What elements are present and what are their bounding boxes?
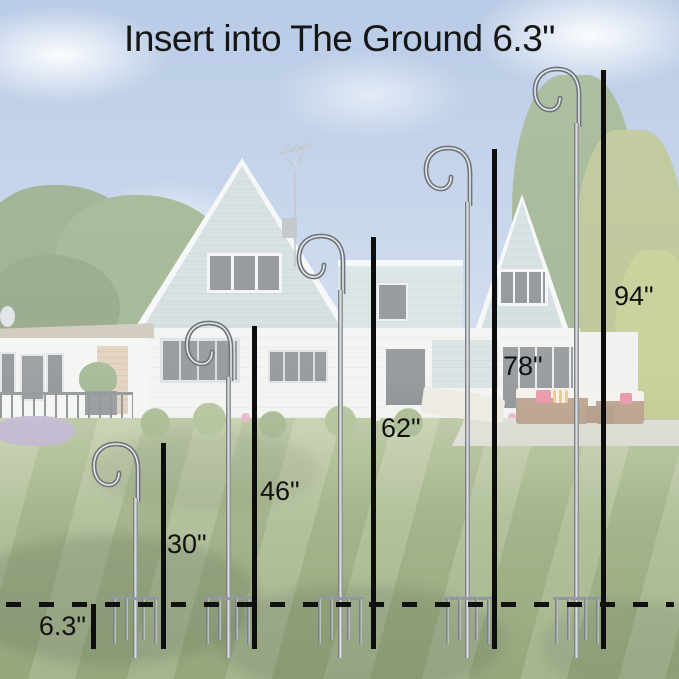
hook-pole-94 — [574, 123, 579, 658]
measure-line-46 — [252, 326, 257, 649]
fork-crossbar — [444, 597, 492, 600]
height-label-30: 30" — [167, 529, 207, 560]
shepherd-hook-crook-94 — [525, 65, 589, 127]
fork-crossbar — [553, 597, 601, 600]
shepherd-hook-crook-78 — [416, 144, 480, 206]
fork-crossbar — [111, 597, 159, 600]
measure-line-30 — [161, 443, 166, 649]
shepherd-hook-crook-46 — [177, 319, 241, 381]
hook-pole-78 — [465, 202, 470, 658]
page-title: Insert into The Ground 6.3" — [0, 18, 679, 60]
insert-depth-label: 6.3" — [28, 611, 86, 642]
fork-crossbar — [316, 597, 364, 600]
measure-line-62 — [371, 237, 376, 649]
shepherd-hook-crook-62 — [289, 232, 353, 294]
measurement-diagram: Insert into The Ground 6.3" — [0, 0, 679, 679]
height-label-62: 62" — [381, 413, 421, 444]
measure-line-94 — [601, 70, 606, 649]
ground-level-dashed-line — [6, 602, 674, 607]
size-comparison-image: Insert into The Ground 6.3" — [0, 0, 679, 679]
height-label-78: 78" — [503, 351, 543, 382]
height-label-94: 94" — [614, 281, 654, 312]
height-label-46: 46" — [260, 476, 300, 507]
insert-depth-line — [91, 604, 96, 649]
shepherd-hook-crook-30 — [84, 440, 148, 502]
fork-crossbar — [204, 597, 252, 600]
measure-line-78 — [492, 149, 497, 649]
